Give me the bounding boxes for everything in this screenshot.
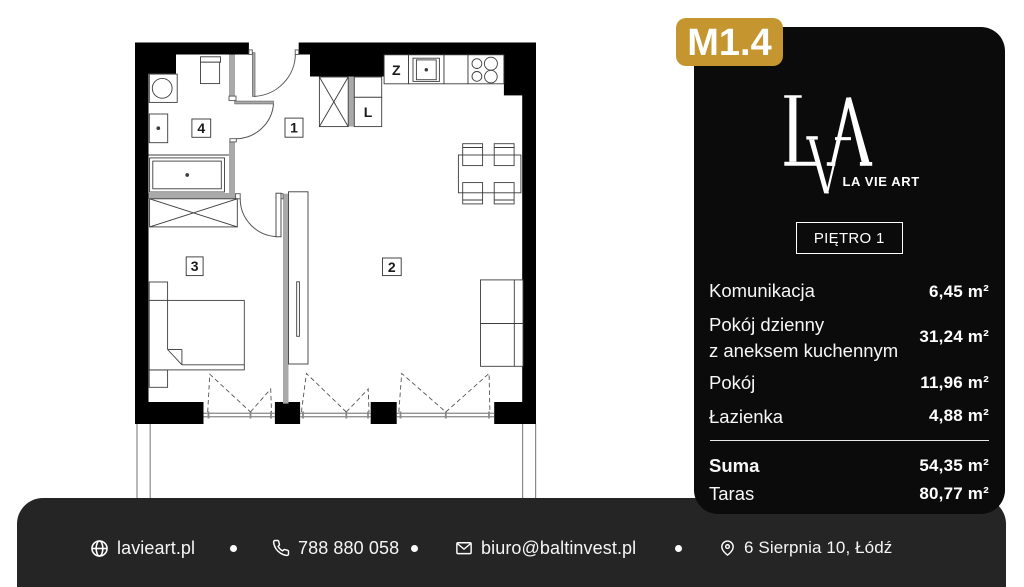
svg-text:Z: Z	[392, 62, 401, 78]
svg-text:1: 1	[290, 120, 298, 136]
svg-text:3: 3	[191, 258, 199, 274]
svg-text:4: 4	[197, 120, 205, 136]
svg-text:L: L	[364, 104, 373, 120]
svg-text:2: 2	[388, 259, 396, 275]
